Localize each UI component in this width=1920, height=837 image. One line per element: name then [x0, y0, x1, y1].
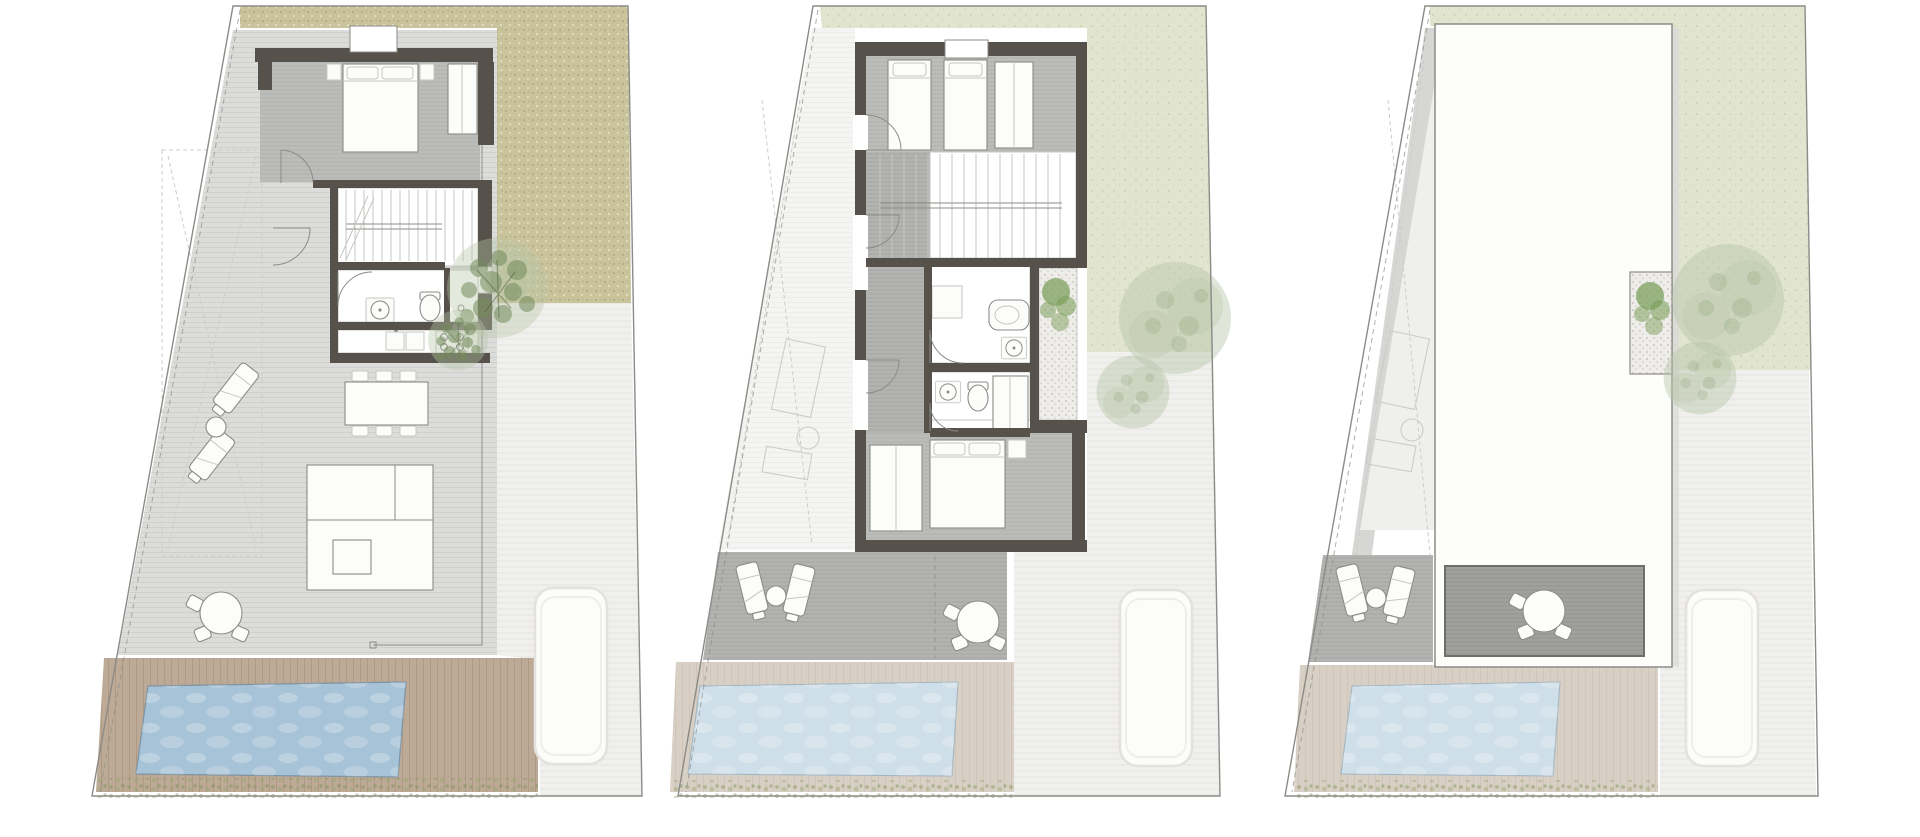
building-upper-floor: [853, 40, 1087, 552]
parked-car: [535, 588, 607, 764]
nightstand: [1008, 440, 1026, 458]
tree-small: [1664, 342, 1737, 415]
tree-small: [1097, 356, 1170, 429]
bath2-sink: [935, 381, 960, 403]
bath1-sink: [1001, 337, 1026, 359]
toilet: [420, 292, 440, 321]
sofa-group: [307, 465, 433, 590]
first-floor-plan: [670, 6, 1231, 798]
nightstand-right: [420, 64, 434, 80]
tree-large: [1672, 244, 1784, 356]
stair-room: [338, 188, 478, 266]
grass-verge: [95, 778, 538, 798]
pool-water-texture: [688, 682, 958, 776]
entry-canopy: [350, 26, 397, 52]
dining-table: [345, 382, 428, 425]
roof-plan: [1285, 6, 1818, 798]
coffee-table: [333, 540, 371, 574]
parked-car: [1120, 590, 1192, 766]
double-bed: [343, 64, 418, 152]
ground-floor-plan: [92, 6, 642, 798]
bath-sink: [366, 298, 394, 322]
bath1-vanity: [932, 286, 962, 318]
parked-car: [1686, 590, 1758, 766]
bathtub: [989, 300, 1029, 330]
nightstand-left: [327, 64, 341, 80]
kitchen-sink-right: [406, 332, 424, 350]
single-bed-left: [888, 60, 931, 150]
plan-sheet-canvas: [0, 0, 1920, 837]
master-bed: [930, 440, 1005, 528]
pool-water-texture: [136, 682, 406, 777]
floor-plan-sheet: [0, 0, 1920, 837]
tree-small: [428, 310, 488, 370]
roof-shadow: [1672, 28, 1679, 667]
roof-slab: [1435, 24, 1679, 667]
single-bed-right: [944, 60, 987, 150]
ghost-texture: [718, 28, 855, 550]
kitchen-sink-left: [386, 332, 404, 350]
toilet: [968, 382, 988, 411]
entry-canopy: [945, 40, 988, 58]
dining-set: [345, 371, 428, 436]
